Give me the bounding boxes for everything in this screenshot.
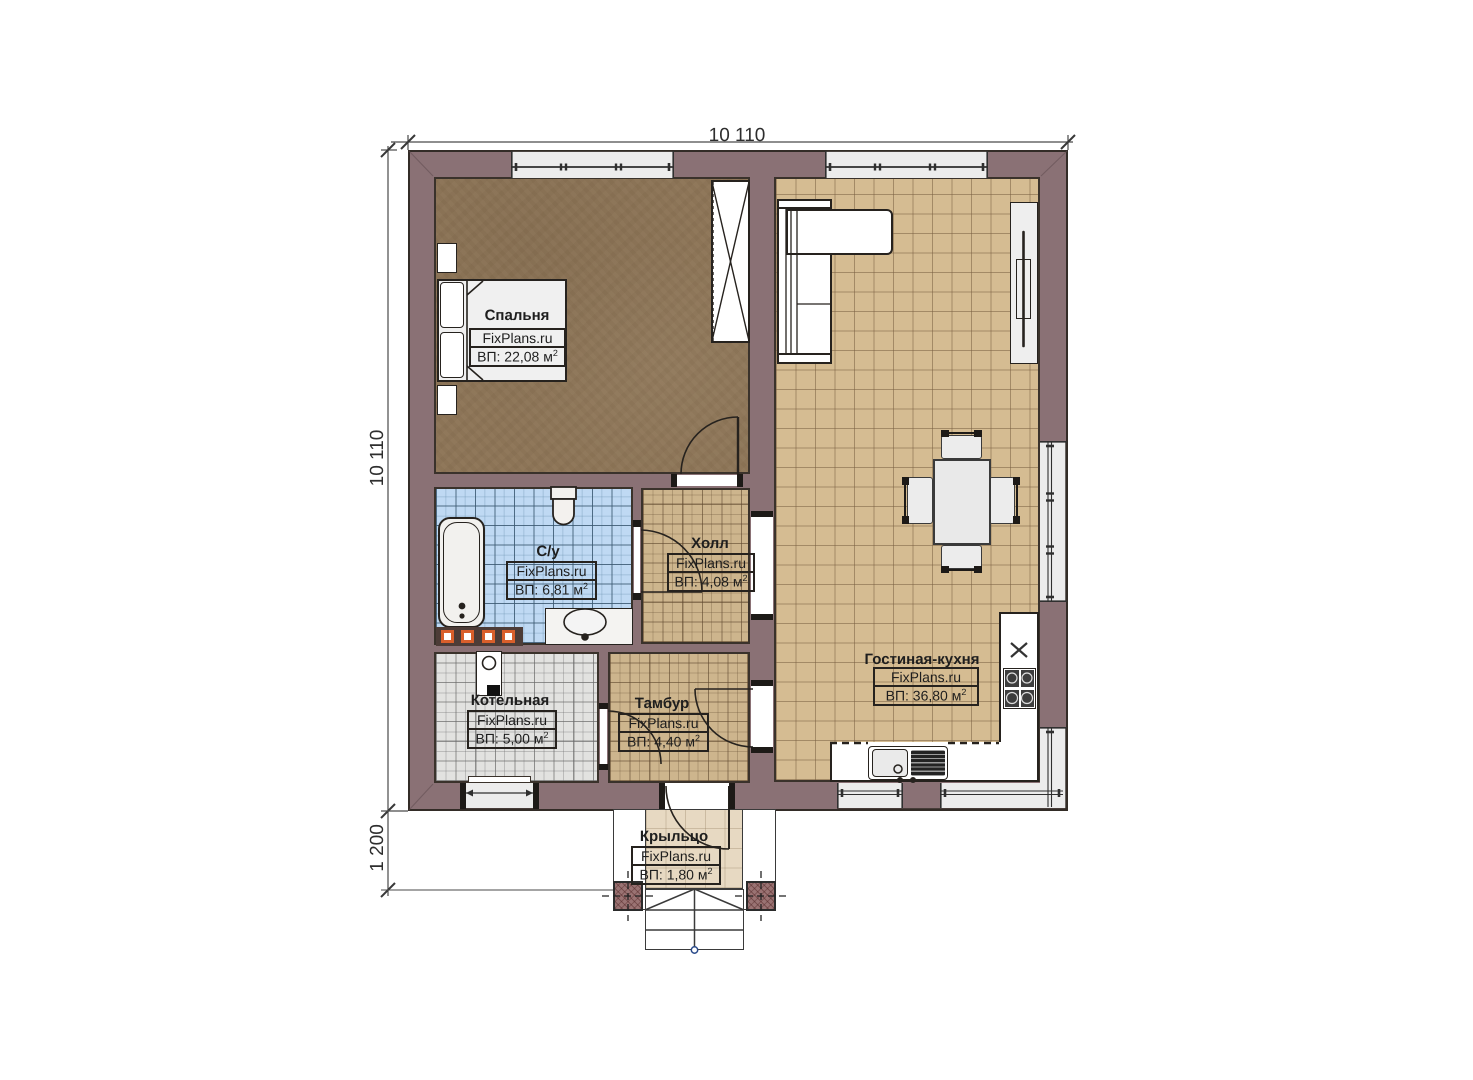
svg-text:1 200: 1 200 [367, 824, 388, 872]
svg-text:10 110: 10 110 [367, 430, 388, 487]
svg-text:10 110: 10 110 [709, 125, 766, 146]
